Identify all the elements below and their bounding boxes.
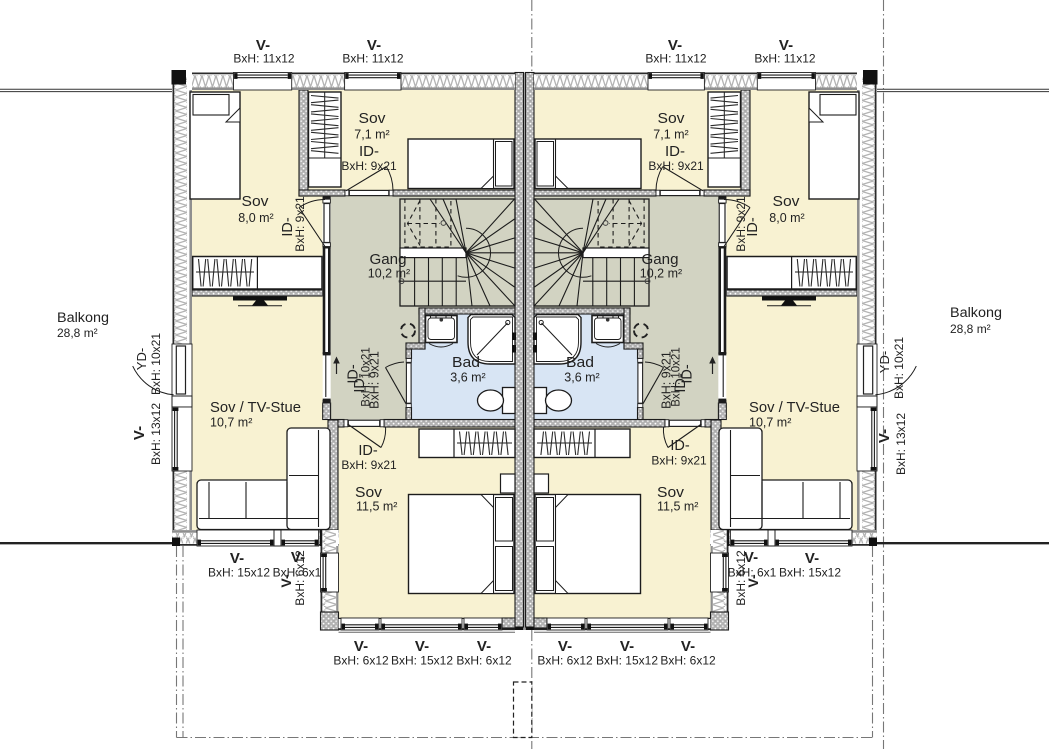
svg-text:Sov: Sov xyxy=(773,193,801,210)
svg-text:ID-: ID- xyxy=(359,143,379,160)
svg-text:Sov / TV-Stue: Sov / TV-Stue xyxy=(749,399,840,416)
svg-text:BxH: 11x12: BxH: 11x12 xyxy=(754,52,815,66)
svg-text:8,0 m²: 8,0 m² xyxy=(769,211,804,225)
svg-text:V-: V- xyxy=(620,638,634,655)
svg-text:ID-: ID- xyxy=(665,143,685,160)
svg-text:BxH: 11x12: BxH: 11x12 xyxy=(342,52,403,66)
svg-text:8,0 m²: 8,0 m² xyxy=(238,211,273,225)
svg-text:V-: V- xyxy=(477,638,491,655)
svg-text:V-: V- xyxy=(681,638,695,655)
svg-text:BxH: 13x12: BxH: 13x12 xyxy=(894,413,908,475)
svg-text:Sov: Sov xyxy=(658,110,686,127)
svg-text:ID-: ID- xyxy=(358,443,378,459)
svg-text:BxH: 13x12: BxH: 13x12 xyxy=(149,403,163,465)
svg-text:YD-: YD- xyxy=(134,348,149,370)
svg-text:V-: V- xyxy=(131,426,148,440)
svg-text:BxH: 15x12: BxH: 15x12 xyxy=(391,654,453,668)
svg-text:BxH: 9x21: BxH: 9x21 xyxy=(293,196,307,252)
svg-text:10,7 m²: 10,7 m² xyxy=(749,416,791,430)
svg-text:3,6 m²: 3,6 m² xyxy=(450,371,485,385)
svg-text:Sov: Sov xyxy=(359,110,387,127)
svg-text:11,5 m²: 11,5 m² xyxy=(657,500,698,514)
svg-text:ID-: ID- xyxy=(670,438,690,454)
svg-text:BxH: 6x12: BxH: 6x12 xyxy=(537,654,593,668)
svg-text:BxH: 11x12: BxH: 11x12 xyxy=(645,52,706,66)
svg-text:V-: V- xyxy=(291,549,305,566)
svg-text:Sov: Sov xyxy=(355,484,383,501)
svg-text:BxH: 15x12: BxH: 15x12 xyxy=(596,654,658,668)
svg-text:7,1 m²: 7,1 m² xyxy=(354,128,389,142)
svg-text:BxH: 10x21: BxH: 10x21 xyxy=(149,333,163,395)
svg-text:BxH: 9x21: BxH: 9x21 xyxy=(368,351,382,409)
svg-text:V-: V- xyxy=(415,638,429,655)
svg-text:V-: V- xyxy=(558,638,572,655)
svg-text:BxH: 9x21: BxH: 9x21 xyxy=(660,351,674,409)
svg-text:11,5 m²: 11,5 m² xyxy=(356,500,397,514)
svg-text:YD-: YD- xyxy=(877,351,892,373)
svg-text:BxH: 9x21: BxH: 9x21 xyxy=(341,159,397,173)
svg-text:Balkong: Balkong xyxy=(57,310,109,325)
svg-text:V-: V- xyxy=(744,549,758,566)
svg-text:V-: V- xyxy=(805,550,819,567)
svg-text:BxH: 9x21: BxH: 9x21 xyxy=(648,159,704,173)
svg-text:28,8 m²: 28,8 m² xyxy=(57,326,98,340)
svg-text:Bad: Bad xyxy=(452,354,480,371)
svg-text:BxH: 11x12: BxH: 11x12 xyxy=(233,52,294,66)
svg-text:Sov: Sov xyxy=(242,193,270,210)
svg-text:10,7 m²: 10,7 m² xyxy=(210,416,252,430)
svg-text:Bad: Bad xyxy=(566,354,594,371)
svg-text:BxH: 6x12: BxH: 6x12 xyxy=(660,654,716,668)
svg-text:BxH: 9x21: BxH: 9x21 xyxy=(651,454,707,468)
svg-text:BxH: 6x12: BxH: 6x12 xyxy=(456,654,512,668)
svg-text:Sov: Sov xyxy=(657,484,685,501)
svg-text:Sov / TV-Stue: Sov / TV-Stue xyxy=(210,399,301,416)
svg-text:3,6 m²: 3,6 m² xyxy=(564,371,599,385)
svg-text:V-: V- xyxy=(230,550,244,567)
svg-text:BxH: 9x21: BxH: 9x21 xyxy=(341,458,397,472)
svg-text:Gang: Gang xyxy=(370,251,407,268)
svg-text:Gang: Gang xyxy=(642,251,679,268)
svg-text:BxH: 6x1: BxH: 6x1 xyxy=(273,566,322,580)
svg-text:BxH: 15x12: BxH: 15x12 xyxy=(779,566,841,580)
svg-text:Balkong: Balkong xyxy=(950,305,1002,320)
svg-text:V-: V- xyxy=(876,429,893,443)
svg-text:BxH: 10x21: BxH: 10x21 xyxy=(892,337,906,399)
svg-text:10,2 m²: 10,2 m² xyxy=(640,267,682,281)
svg-text:BxH: 6x12: BxH: 6x12 xyxy=(333,654,389,668)
svg-text:BxH: 9x21: BxH: 9x21 xyxy=(734,196,748,252)
svg-text:BxH: 6x1: BxH: 6x1 xyxy=(728,566,777,580)
svg-text:V-: V- xyxy=(354,638,368,655)
svg-text:7,1 m²: 7,1 m² xyxy=(653,128,688,142)
svg-text:BxH: 15x12: BxH: 15x12 xyxy=(208,566,270,580)
svg-text:10,2 m²: 10,2 m² xyxy=(368,267,410,281)
svg-text:28,8 m²: 28,8 m² xyxy=(950,322,991,336)
